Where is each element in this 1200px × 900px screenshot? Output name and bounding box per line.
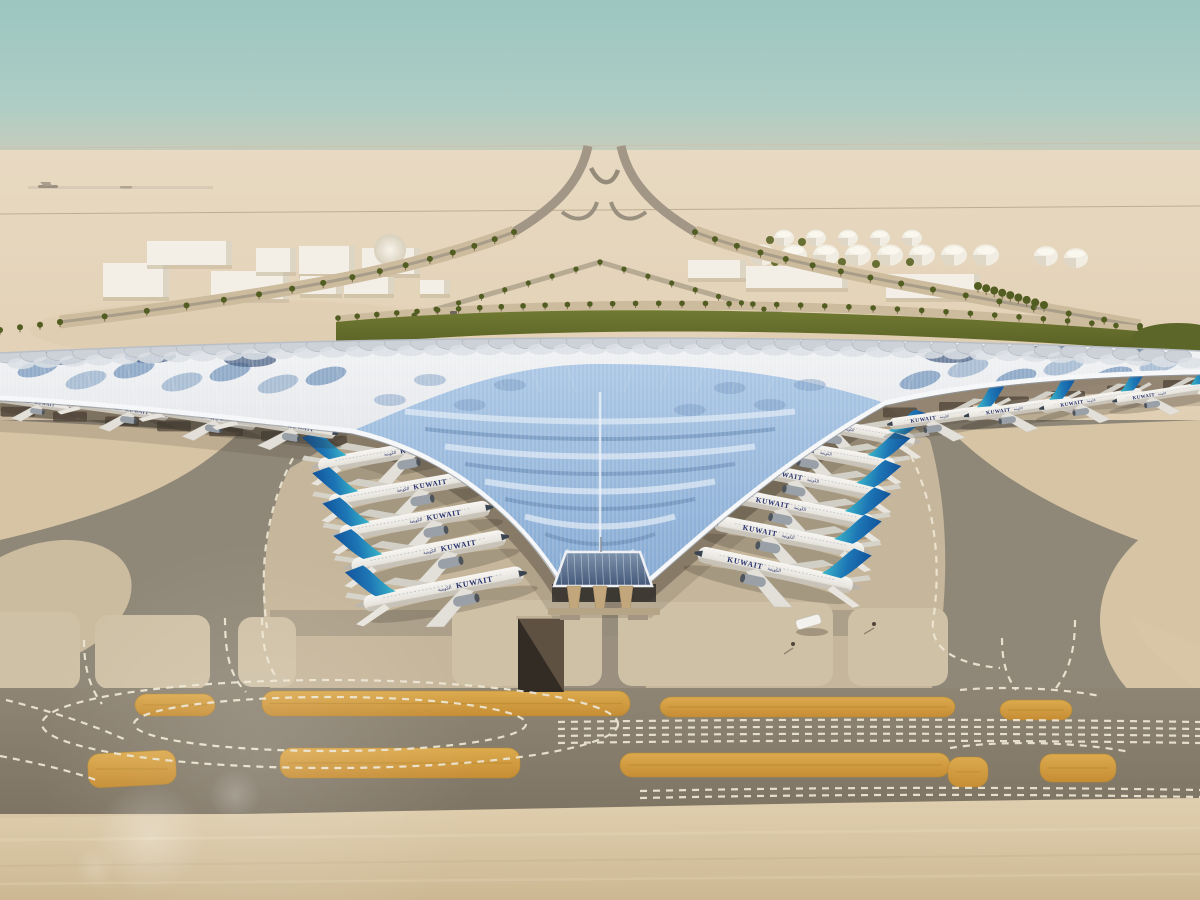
palm-tree (57, 319, 63, 325)
palm-tree (354, 313, 360, 319)
palm-tree (492, 236, 498, 242)
warehouse (299, 246, 355, 274)
palm-tree (998, 289, 1006, 297)
palm-tree (184, 302, 190, 308)
palm-tree (898, 280, 904, 286)
palm-tree (450, 249, 456, 255)
palm-tree (645, 274, 650, 279)
palm-tree (1031, 298, 1039, 306)
fuel-tank-top (905, 232, 920, 238)
aerial-rendering: KUWAITالكويتيةKUWAITالكويتيةKUWAITالكويت… (0, 0, 1200, 900)
palm-tree (1066, 310, 1072, 316)
fuel-tank-top (816, 247, 835, 255)
fuel-tank-top (873, 232, 888, 238)
palm-tree (1113, 323, 1119, 329)
palm-tree (996, 298, 1002, 304)
palm-tree (990, 287, 998, 295)
warehouse-shadow (420, 294, 450, 298)
palm-tree (656, 300, 662, 306)
fuel-tank-top (777, 232, 792, 238)
warehouse-shadow (300, 294, 342, 298)
palm-tree (542, 302, 548, 308)
palm-tree (1041, 316, 1047, 322)
flare-circle (209, 769, 261, 821)
warehouse-shadow (688, 278, 746, 282)
palm-tree (930, 286, 936, 292)
palm-tree (477, 305, 483, 311)
fuel-tank-top (1037, 248, 1055, 255)
palm-tree (394, 310, 400, 316)
palm-tree (919, 308, 925, 314)
palm-tree (498, 304, 504, 310)
palm-tree (822, 303, 828, 309)
underground-ramp (516, 616, 566, 692)
fuel-tank-top (809, 232, 824, 238)
apex-step (628, 615, 648, 620)
fuel-tank-top (880, 247, 899, 255)
palm-tree (565, 302, 571, 308)
palm-tree (456, 300, 461, 305)
warehouse-shadow (256, 272, 296, 276)
warehouse-shadow (147, 265, 232, 269)
palm-tree (320, 280, 326, 286)
palm-tree (520, 303, 526, 309)
palm-tree (757, 250, 763, 256)
palm-tree (867, 274, 873, 280)
palm-tree (750, 301, 756, 307)
warehouse-shadow (746, 288, 848, 292)
fuel-tank-top (848, 247, 867, 255)
palm-tree (1101, 317, 1107, 323)
palm-tree (692, 229, 698, 235)
palm-tree (256, 291, 262, 297)
apex-plinth (548, 608, 660, 615)
tree (872, 260, 880, 268)
palm-tree (511, 229, 517, 235)
palm-tree (679, 300, 685, 306)
palm-tree (895, 306, 901, 312)
warehouse-shade (740, 260, 746, 278)
fuel-tank-top (1067, 250, 1085, 257)
warehouse-shadow (103, 297, 169, 301)
palm-tree (726, 301, 732, 307)
palm-tree (633, 301, 639, 307)
fuel-tank-top (944, 247, 963, 255)
palm-tree (982, 284, 990, 292)
palm-tree (37, 322, 43, 328)
fuel-tank-top (841, 232, 856, 238)
palm-tree (610, 301, 616, 307)
palm-tree (349, 274, 355, 280)
palm-tree (1040, 301, 1048, 309)
fuel-tank-top (912, 247, 931, 255)
palm-tree (374, 312, 380, 318)
palm-tree (102, 313, 108, 319)
palm-tree (456, 306, 462, 312)
palm-tree (377, 268, 383, 274)
palm-tree (798, 302, 804, 308)
flare-circle (75, 848, 115, 888)
figure (872, 622, 876, 626)
tree (906, 258, 914, 266)
warehouse (147, 241, 232, 265)
palm-tree (968, 311, 974, 317)
palm-tree (1014, 293, 1022, 301)
palm-tree (712, 236, 718, 242)
palm-tree (974, 282, 982, 290)
warehouse-shade (388, 277, 394, 294)
palm-tree (471, 243, 477, 249)
palm-tree (810, 262, 816, 268)
fuel-tank-top (976, 247, 995, 255)
palm-tree (289, 286, 295, 292)
warehouse-shade (444, 280, 450, 294)
palm-tree (479, 294, 484, 299)
palm-tree (734, 243, 740, 249)
tree (798, 238, 806, 246)
palm-tree (1065, 318, 1071, 324)
warehouse-shadow (344, 294, 394, 298)
palm-tree (761, 307, 766, 312)
palm-tree (846, 304, 852, 310)
palm-tree (573, 267, 578, 272)
palm-tree (17, 324, 23, 330)
palm-tree (963, 292, 969, 298)
palm-tree (703, 301, 709, 307)
palm-tree (774, 302, 780, 308)
palm-tree (587, 301, 593, 307)
palm-tree (870, 305, 876, 311)
palm-tree (526, 280, 531, 285)
palm-tree (549, 274, 554, 279)
warehouse (688, 260, 746, 278)
tree (766, 236, 774, 244)
palm-tree (435, 307, 441, 313)
apex-columns (567, 586, 633, 610)
palm-tree (1006, 291, 1014, 299)
palm-tree (1089, 320, 1095, 326)
palm-tree (403, 262, 409, 268)
palm-tree (693, 287, 698, 292)
palm-tree (1016, 314, 1022, 320)
palm-tree (502, 287, 507, 292)
palm-tree (1023, 296, 1031, 304)
palm-tree (838, 268, 844, 274)
palm-tree (943, 309, 949, 315)
palm-tree (597, 259, 602, 264)
palm-tree (335, 315, 341, 321)
warehouse-shade (349, 246, 355, 274)
warehouse-shade (290, 248, 296, 272)
palm-tree (992, 312, 998, 318)
palm-tree (669, 280, 674, 285)
apex-step (560, 615, 580, 620)
palm-tree (739, 300, 744, 305)
palm-tree (414, 309, 420, 315)
palm-tree (427, 256, 433, 262)
palm-tree (221, 297, 227, 303)
palm-tree (144, 308, 150, 314)
warehouse-shade (226, 241, 232, 265)
stand-pad (848, 608, 948, 686)
palm-tree (621, 267, 626, 272)
figure (791, 642, 795, 646)
palm-tree (716, 294, 721, 299)
palm-tree (783, 256, 789, 262)
